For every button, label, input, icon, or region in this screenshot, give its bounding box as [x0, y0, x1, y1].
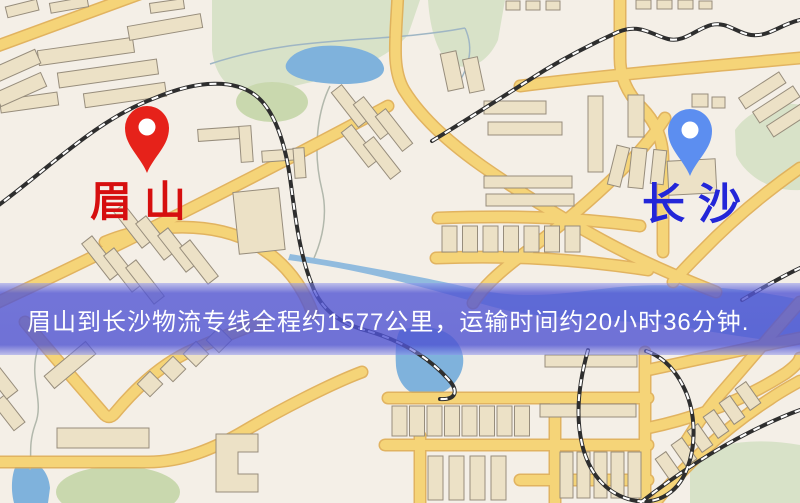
map-canvas[interactable] — [0, 0, 800, 503]
origin-city-label: 眉山 — [90, 181, 198, 223]
route-info-banner: 眉山到长沙物流专线全程约1577公里，运输时间约20小时36分钟. — [0, 283, 800, 355]
route-info-text: 眉山到长沙物流专线全程约1577公里，运输时间约20小时36分钟. — [0, 302, 749, 337]
destination-city-label: 长沙 — [642, 184, 754, 227]
map-screenshot: 眉山 长沙 眉山到长沙物流专线全程约1577公里，运输时间约20小时36分钟. — [0, 0, 800, 503]
